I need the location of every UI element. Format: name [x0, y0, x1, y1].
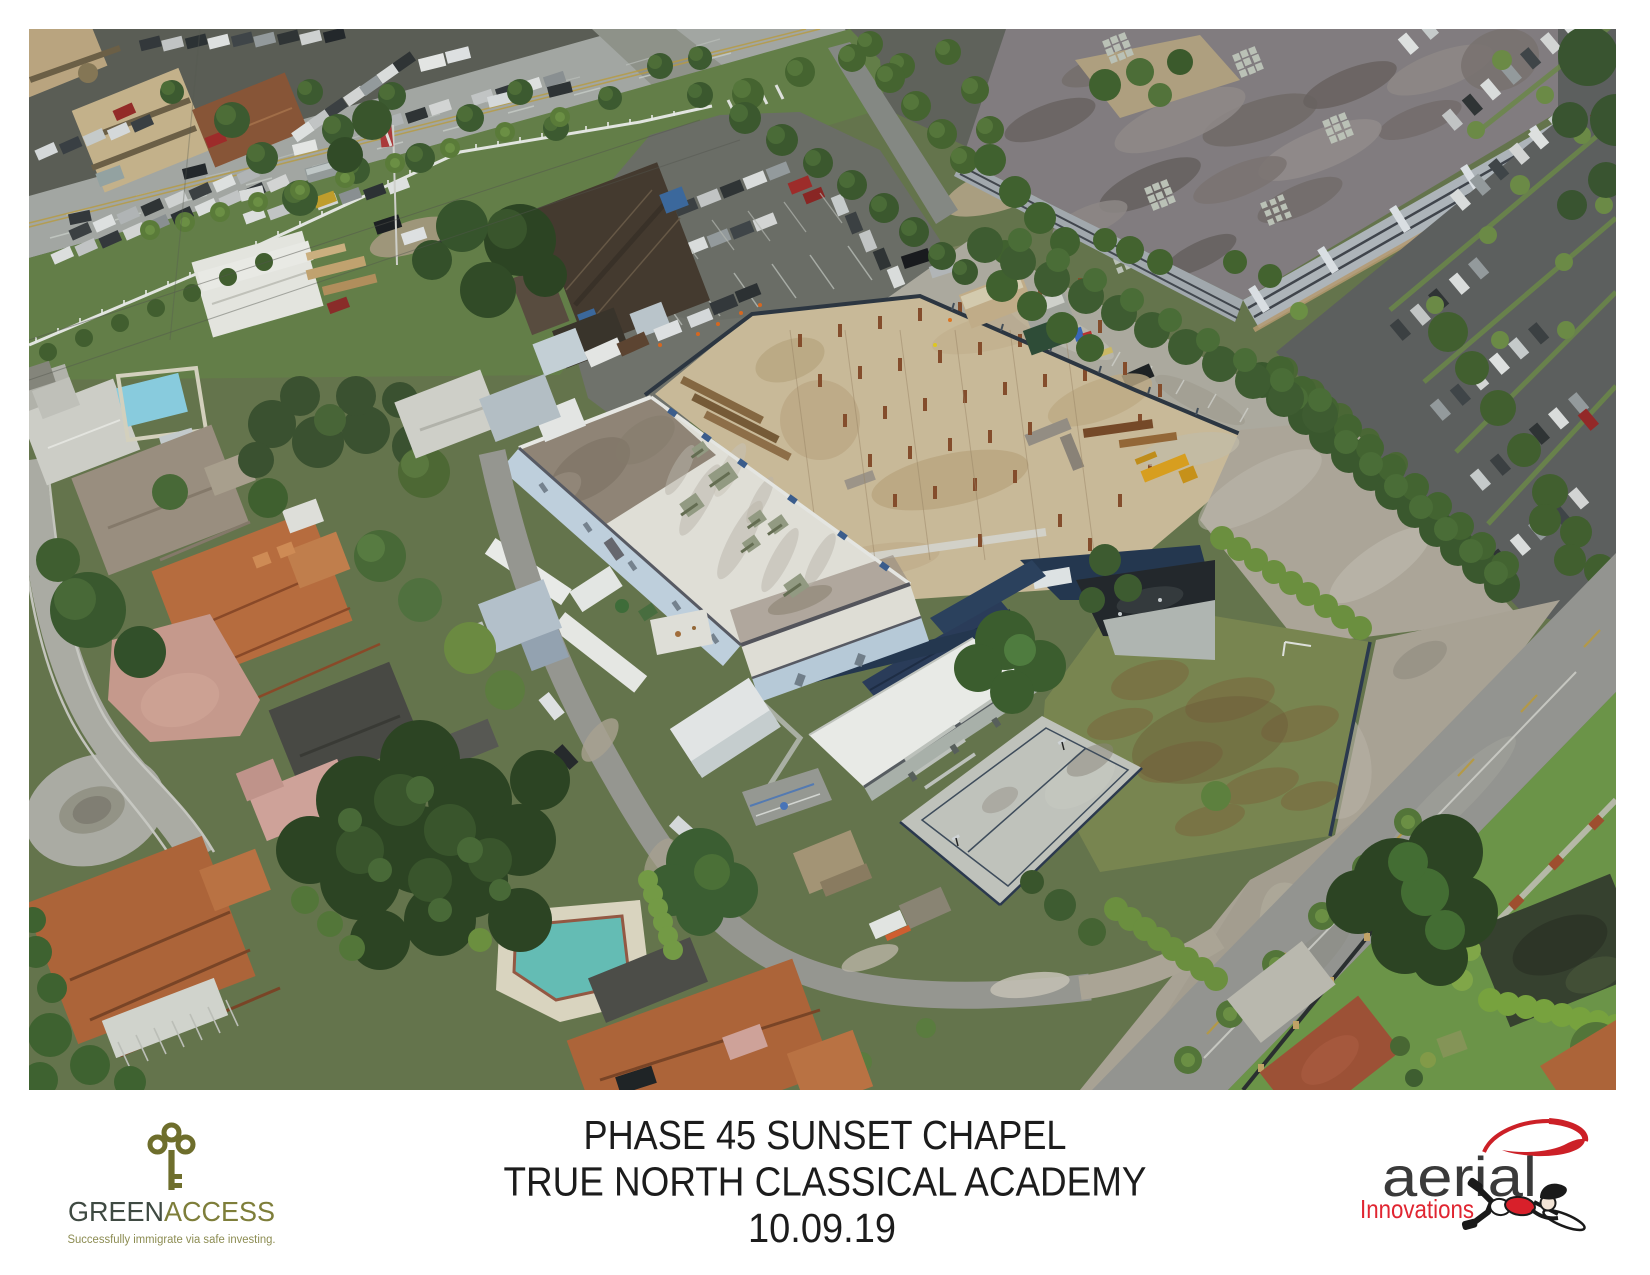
svg-text:Successfully immigrate via saf: Successfully immigrate via safe investin…	[68, 1234, 276, 1246]
svg-text:Innovations: Innovations	[1360, 1194, 1474, 1224]
svg-text:TRUE NORTH CLASSICAL ACADEMY: TRUE NORTH CLASSICAL ACADEMY	[504, 1159, 1147, 1205]
svg-text:10.09.19: 10.09.19	[748, 1205, 896, 1251]
svg-text:GREENACCESS: GREENACCESS	[68, 1196, 275, 1227]
svg-text:PHASE 45 SUNSET CHAPEL: PHASE 45 SUNSET CHAPEL	[584, 1112, 1067, 1158]
